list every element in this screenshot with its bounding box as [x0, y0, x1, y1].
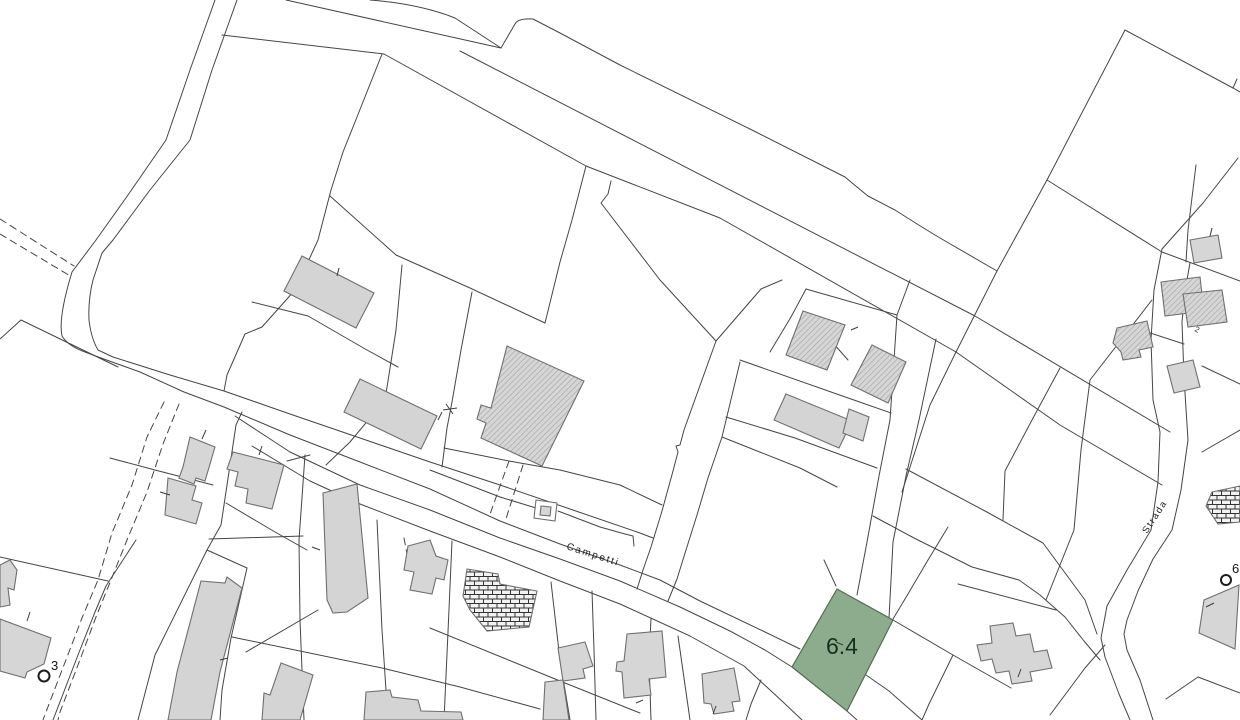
svg-text:6: 6 [1232, 561, 1239, 576]
svg-text:3: 3 [51, 658, 58, 673]
svg-text:6.4: 6.4 [826, 633, 858, 659]
